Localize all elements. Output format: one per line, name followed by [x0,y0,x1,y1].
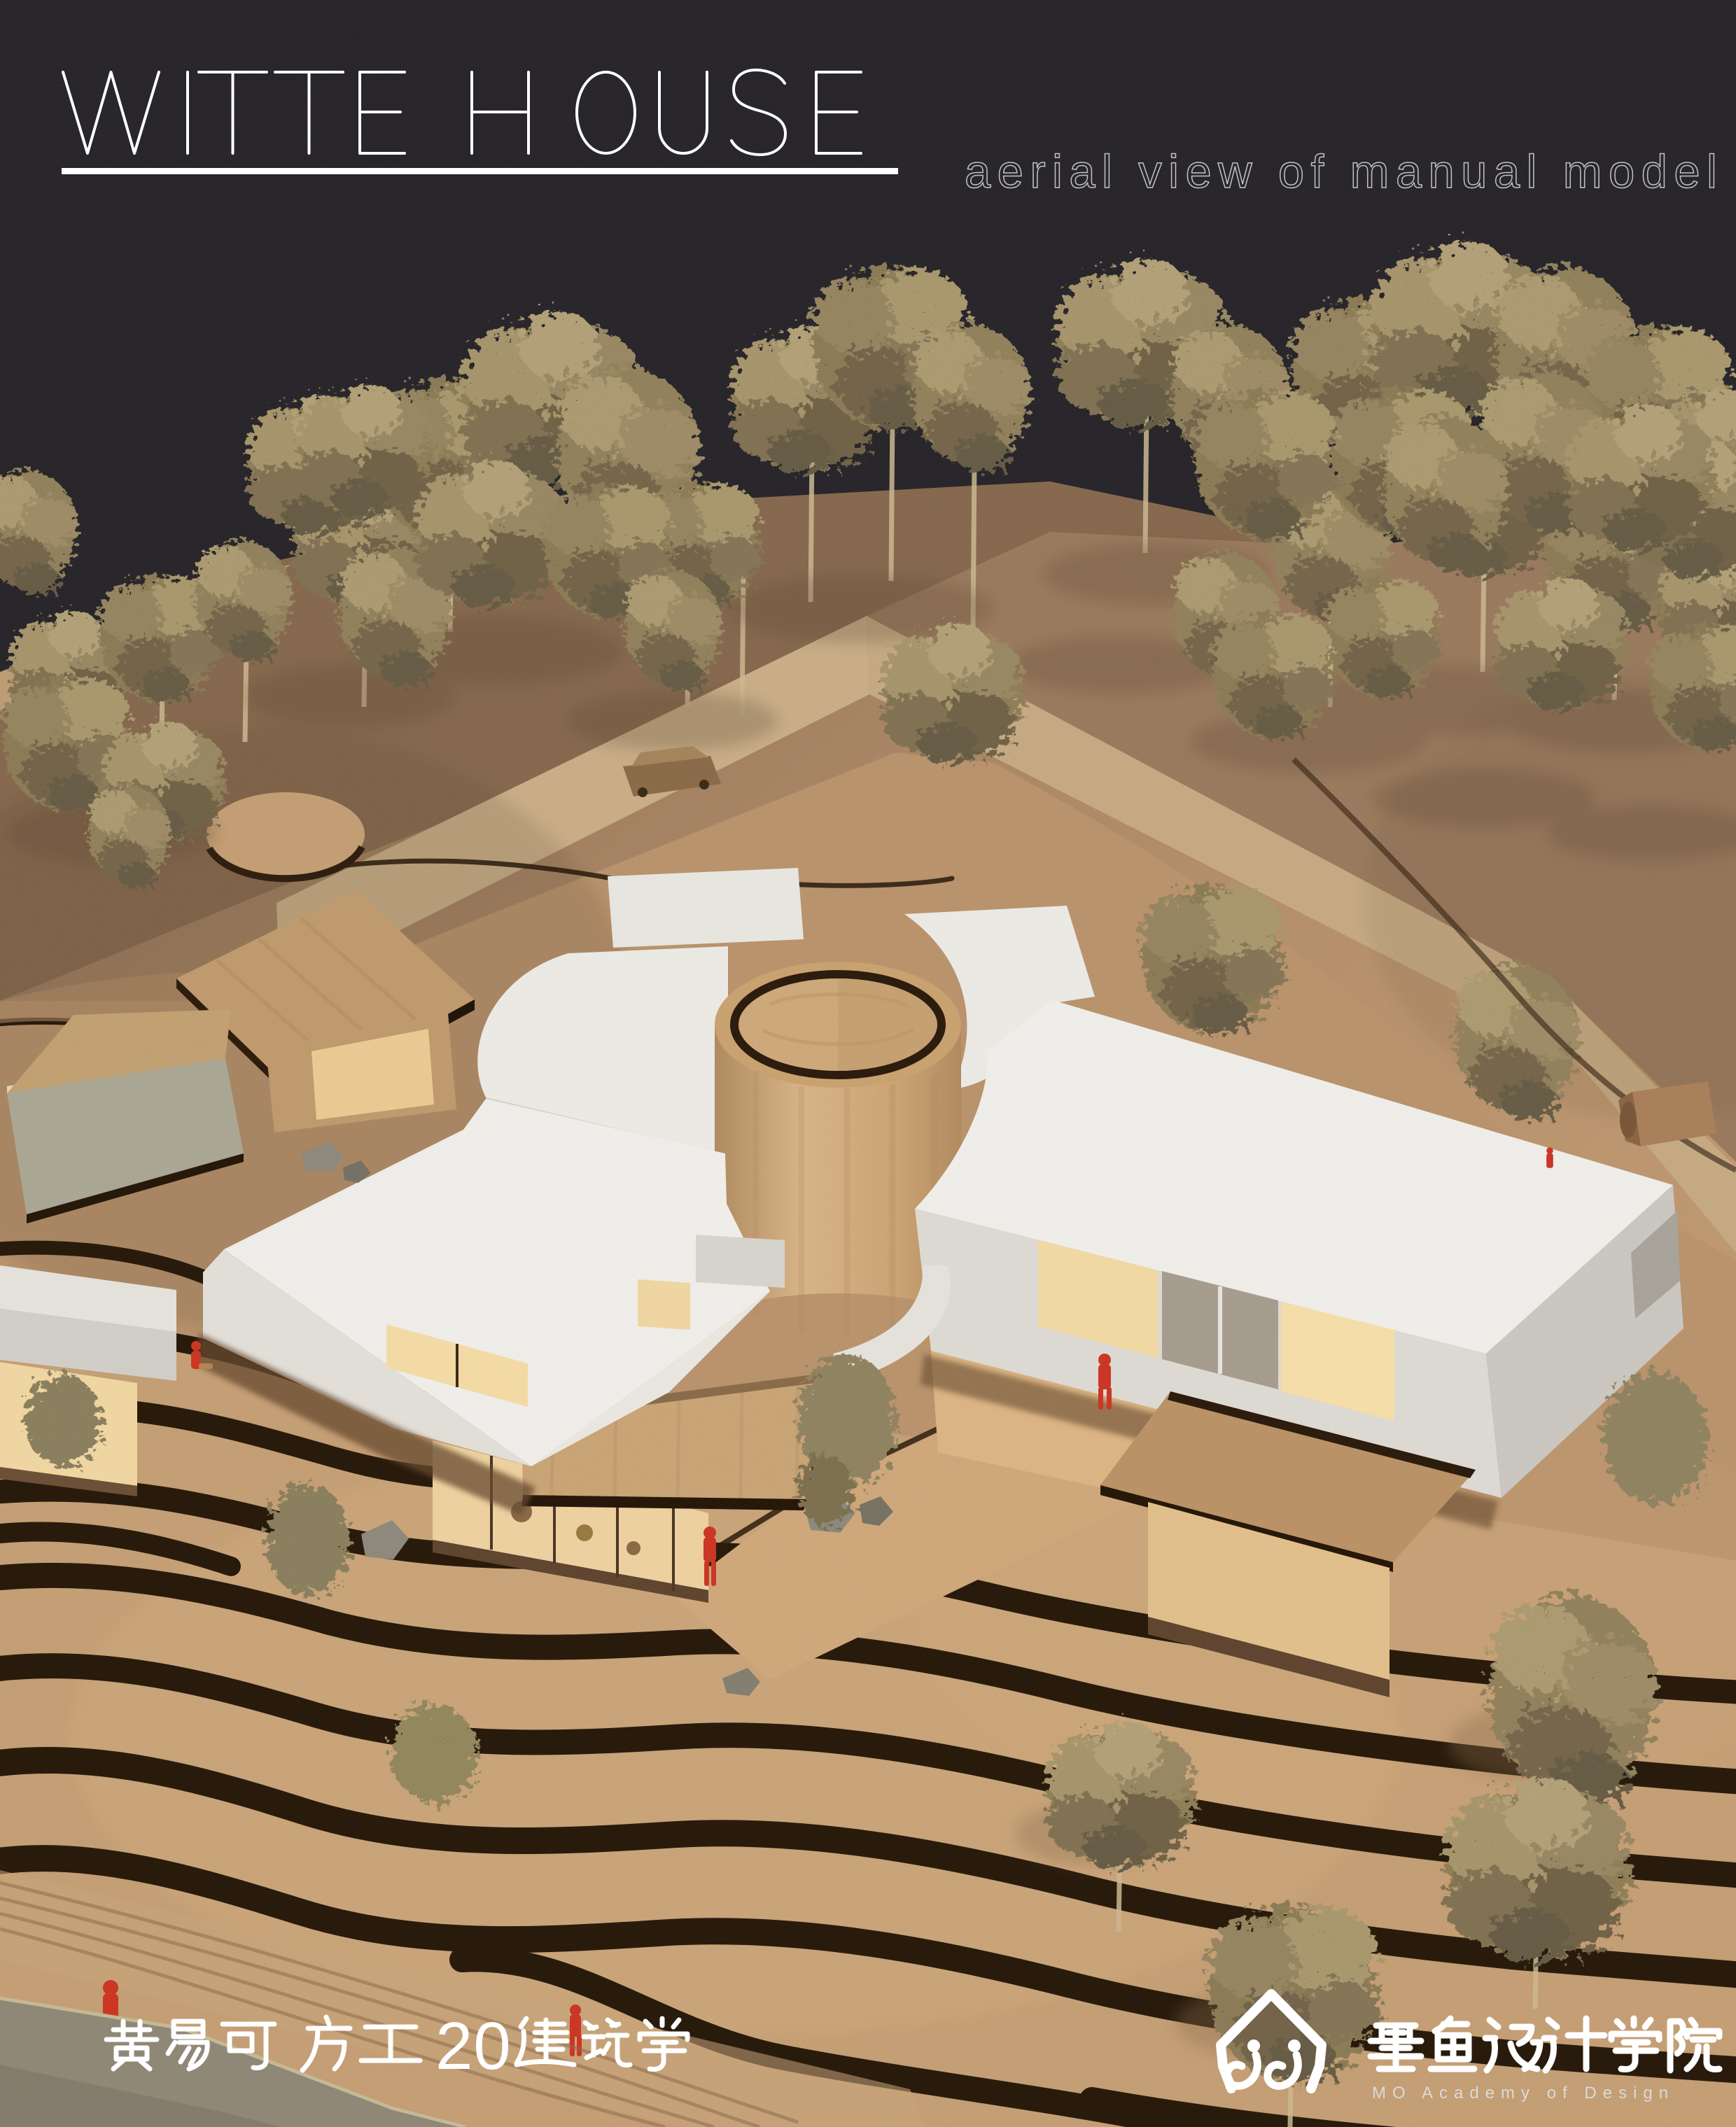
svg-text:20: 20 [435,2009,512,2084]
svg-text:MO Academy of Design: MO Academy of Design [1372,2084,1674,2103]
svg-text:aerial view of manual model: aerial view of manual model [965,146,1723,198]
